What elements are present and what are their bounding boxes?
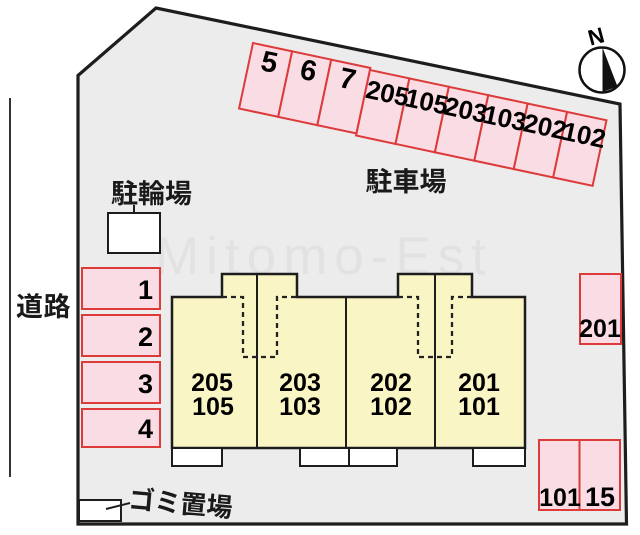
svg-text:1: 1	[138, 275, 153, 305]
svg-text:2: 2	[138, 322, 153, 352]
svg-text:15: 15	[585, 482, 615, 512]
svg-text:101: 101	[458, 393, 500, 421]
svg-text:201: 201	[579, 315, 621, 343]
svg-text:4: 4	[138, 414, 153, 444]
svg-text:3: 3	[138, 369, 153, 399]
svg-text:102: 102	[370, 393, 412, 421]
svg-text:101: 101	[539, 484, 581, 512]
svg-text:105: 105	[192, 393, 234, 421]
svg-text:103: 103	[279, 393, 321, 421]
